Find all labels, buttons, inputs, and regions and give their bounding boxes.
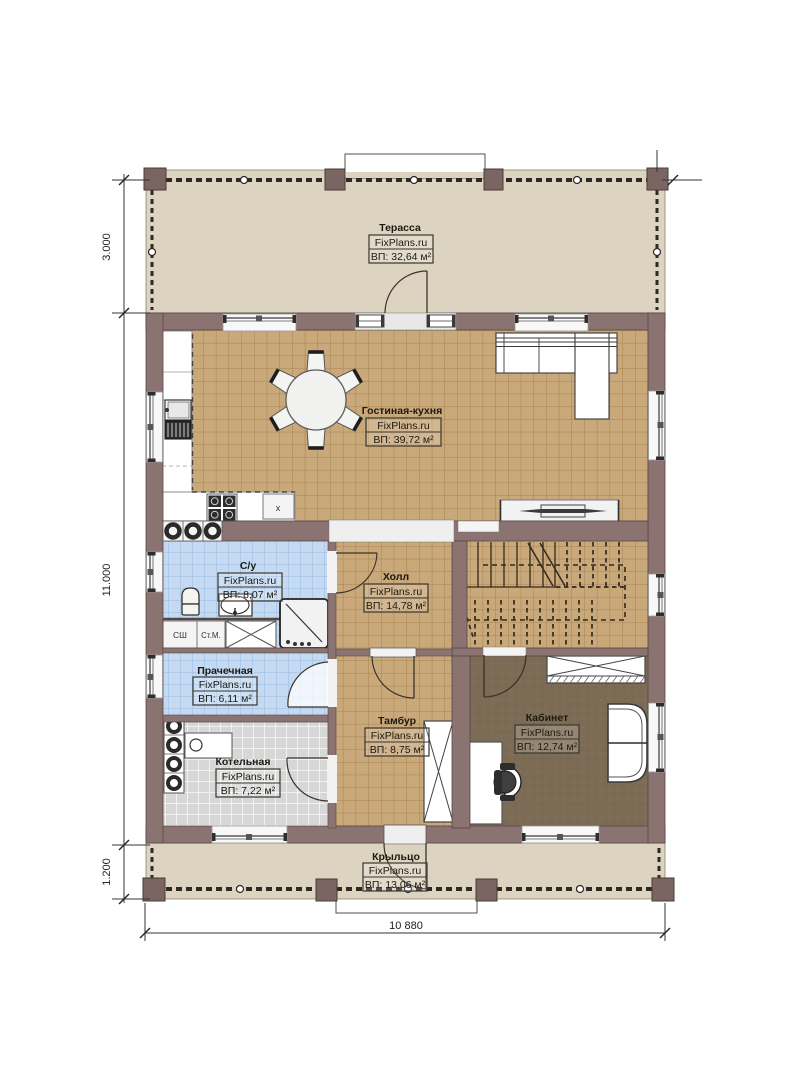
svg-text:FixPlans.ru: FixPlans.ru bbox=[224, 575, 277, 587]
svg-text:3.000: 3.000 bbox=[101, 233, 113, 261]
svg-text:FixPlans.ru: FixPlans.ru bbox=[222, 771, 275, 783]
svg-text:FixPlans.ru: FixPlans.ru bbox=[199, 679, 252, 691]
svg-text:FixPlans.ru: FixPlans.ru bbox=[377, 420, 430, 432]
svg-text:Тамбур: Тамбур bbox=[378, 715, 416, 727]
svg-text:ВП: 13,06 м²: ВП: 13,06 м² bbox=[365, 879, 426, 891]
svg-text:11.000: 11.000 bbox=[101, 564, 113, 597]
svg-text:10 880: 10 880 bbox=[389, 920, 423, 932]
svg-text:Кабинет: Кабинет bbox=[526, 712, 569, 724]
svg-text:FixPlans.ru: FixPlans.ru bbox=[521, 727, 574, 739]
svg-text:ВП: 12,74 м²: ВП: 12,74 м² bbox=[517, 741, 578, 753]
svg-text:ВП: 32,64 м²: ВП: 32,64 м² bbox=[371, 251, 432, 263]
svg-text:FixPlans.ru: FixPlans.ru bbox=[370, 586, 423, 598]
svg-text:x: x bbox=[276, 503, 281, 513]
svg-text:Крыльцо: Крыльцо bbox=[372, 851, 420, 863]
svg-text:ВП: 8,75 м²: ВП: 8,75 м² bbox=[370, 744, 425, 756]
svg-text:СШ: СШ bbox=[173, 630, 187, 640]
svg-text:Котельная: Котельная bbox=[216, 756, 271, 768]
svg-text:Прачечная: Прачечная bbox=[197, 665, 253, 677]
svg-text:ВП: 7,22 м²: ВП: 7,22 м² bbox=[221, 785, 276, 797]
svg-text:Терасса: Терасса bbox=[379, 222, 421, 234]
svg-text:ВП: 6,11 м²: ВП: 6,11 м² bbox=[198, 693, 252, 705]
svg-text:ВП: 8,07 м²: ВП: 8,07 м² bbox=[223, 589, 278, 601]
svg-text:Холл: Холл bbox=[383, 571, 409, 583]
svg-text:С/у: С/у bbox=[240, 560, 257, 572]
svg-text:Ст.М.: Ст.М. bbox=[201, 631, 221, 640]
svg-text:ВП: 39,72 м²: ВП: 39,72 м² bbox=[373, 434, 434, 446]
svg-text:Гостиная-кухня: Гостиная-кухня bbox=[362, 405, 442, 417]
svg-text:ВП: 14,78 м²: ВП: 14,78 м² bbox=[366, 600, 427, 612]
svg-text:FixPlans.ru: FixPlans.ru bbox=[371, 730, 424, 742]
svg-text:1.200: 1.200 bbox=[101, 858, 113, 886]
svg-text:FixPlans.ru: FixPlans.ru bbox=[369, 865, 422, 877]
svg-text:FixPlans.ru: FixPlans.ru bbox=[375, 237, 428, 249]
